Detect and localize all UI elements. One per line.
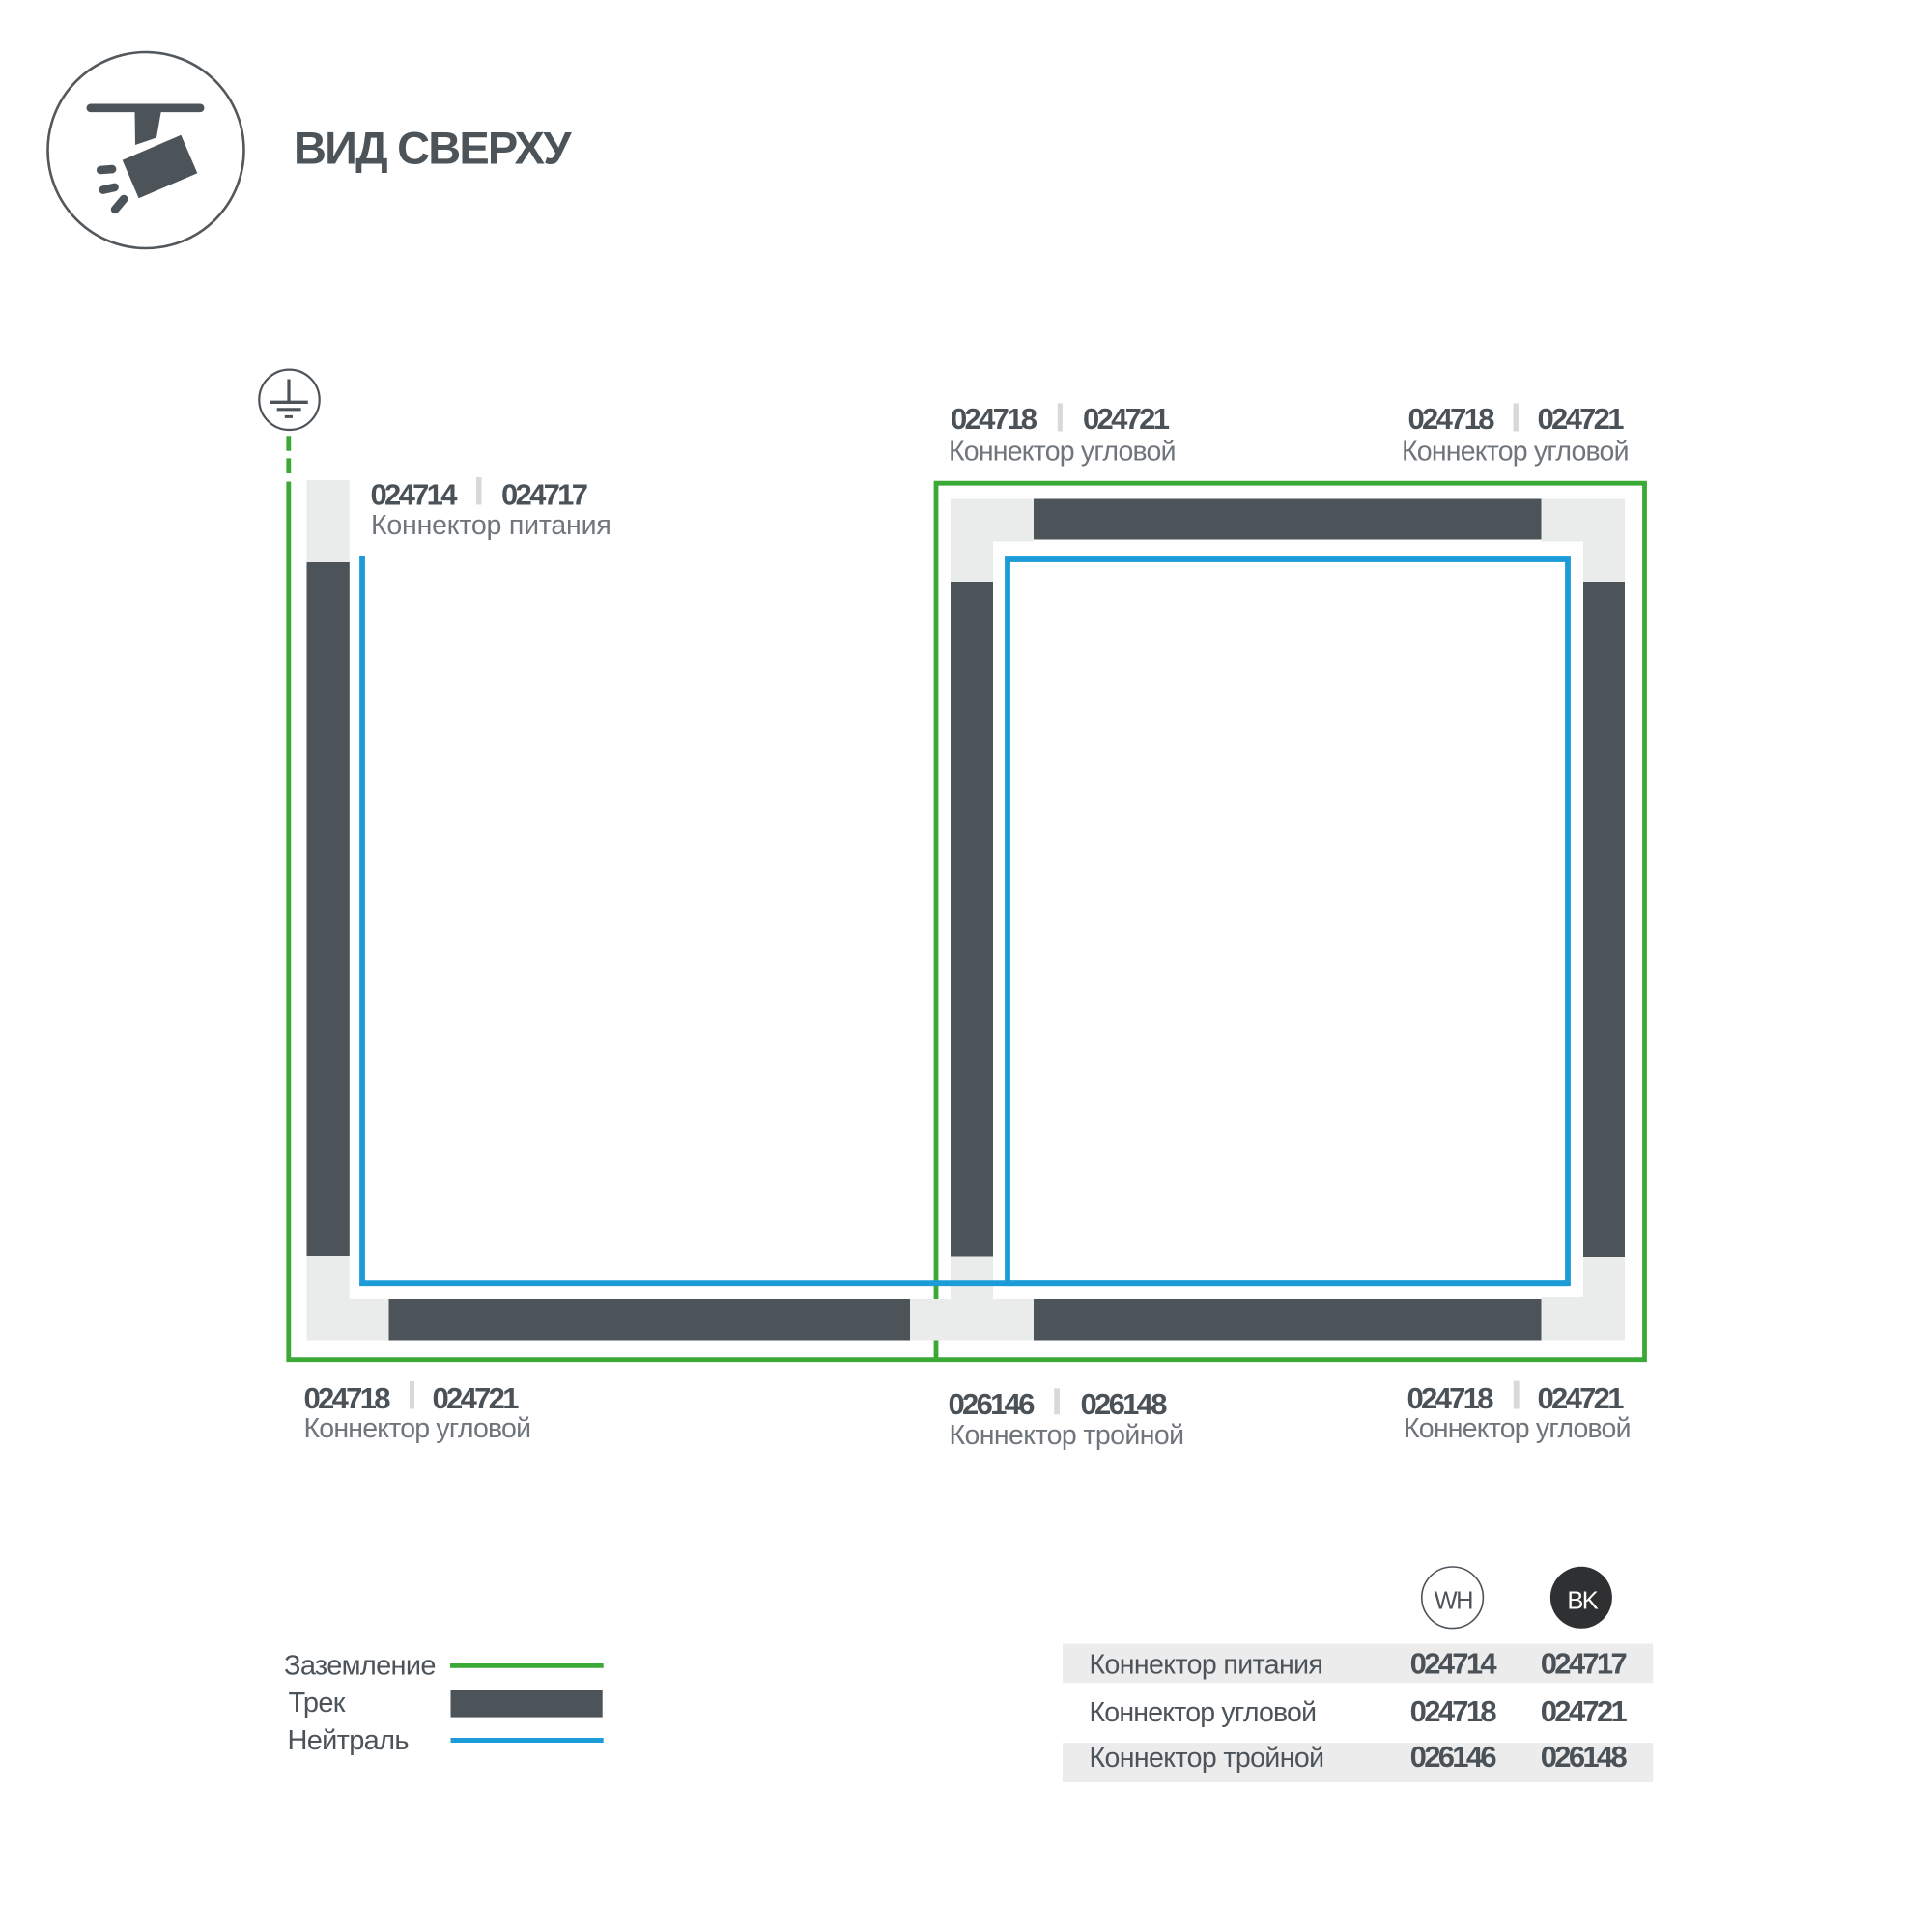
svg-text:024718: 024718	[951, 402, 1037, 436]
svg-text:026146: 026146	[1410, 1740, 1497, 1774]
svg-text:024721: 024721	[433, 1381, 520, 1415]
svg-text:026148: 026148	[1081, 1387, 1168, 1421]
svg-text:BK: BK	[1567, 1588, 1598, 1615]
svg-text:024718: 024718	[1407, 1381, 1494, 1415]
svg-text:024718: 024718	[304, 1381, 391, 1415]
svg-text:ВИД СВЕРХУ: ВИД СВЕРХУ	[294, 123, 572, 174]
svg-text:024717: 024717	[1541, 1647, 1627, 1681]
svg-text:Коннектор угловой: Коннектор угловой	[1404, 1413, 1631, 1444]
svg-text:Коннектор тройной: Коннектор тройной	[1090, 1743, 1324, 1774]
svg-text:024721: 024721	[1083, 402, 1170, 436]
svg-text:Коннектор угловой: Коннектор угловой	[949, 437, 1176, 468]
svg-text:024718: 024718	[1408, 402, 1495, 436]
svg-text:WH: WH	[1435, 1588, 1472, 1615]
svg-text:Нейтраль: Нейтраль	[288, 1725, 409, 1756]
svg-text:024714: 024714	[1410, 1647, 1498, 1681]
svg-text:Коннектор питания: Коннектор питания	[1090, 1650, 1323, 1681]
svg-text:Коннектор угловой: Коннектор угловой	[1090, 1697, 1317, 1728]
svg-text:026146: 026146	[949, 1387, 1036, 1421]
svg-text:Коннектор питания: Коннектор питания	[371, 510, 611, 541]
svg-text:Заземление: Заземление	[284, 1651, 436, 1682]
svg-text:Коннектор угловой: Коннектор угловой	[1402, 437, 1629, 468]
svg-text:026148: 026148	[1541, 1740, 1628, 1774]
svg-text:024721: 024721	[1541, 1694, 1628, 1728]
svg-text:024717: 024717	[501, 478, 587, 512]
svg-text:024721: 024721	[1538, 1381, 1625, 1415]
svg-text:024718: 024718	[1410, 1694, 1497, 1728]
svg-text:Коннектор тройной: Коннектор тройной	[950, 1420, 1184, 1451]
svg-text:024714: 024714	[371, 478, 459, 512]
svg-text:Трек: Трек	[289, 1688, 346, 1719]
svg-text:024721: 024721	[1538, 402, 1625, 436]
svg-text:Коннектор угловой: Коннектор угловой	[304, 1413, 531, 1444]
